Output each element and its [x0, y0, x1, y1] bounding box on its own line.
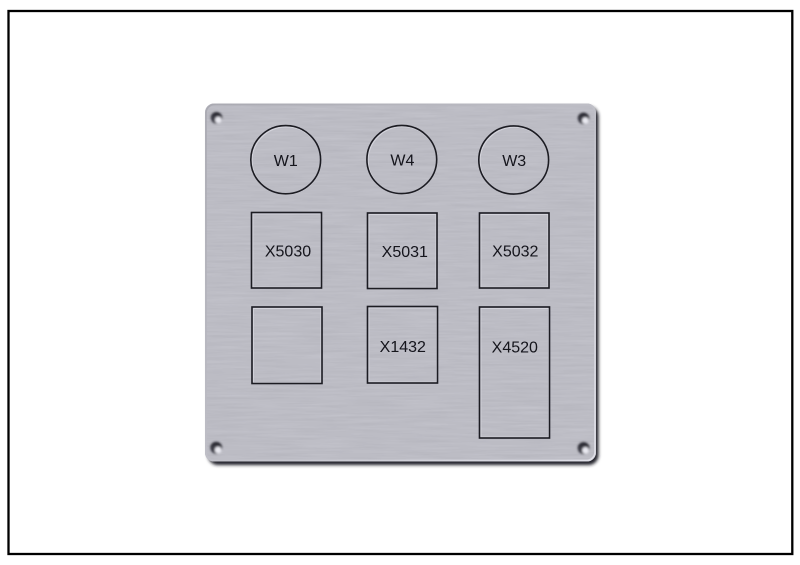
svg-text:X4520: X4520 — [492, 339, 538, 356]
svg-text:W4: W4 — [390, 153, 414, 170]
svg-text:W3: W3 — [502, 153, 526, 170]
svg-text:X5031: X5031 — [382, 244, 428, 261]
svg-text:X1432: X1432 — [380, 339, 426, 356]
svg-text:X5032: X5032 — [492, 244, 538, 261]
svg-text:X5030: X5030 — [265, 244, 311, 261]
svg-text:W1: W1 — [274, 153, 298, 170]
